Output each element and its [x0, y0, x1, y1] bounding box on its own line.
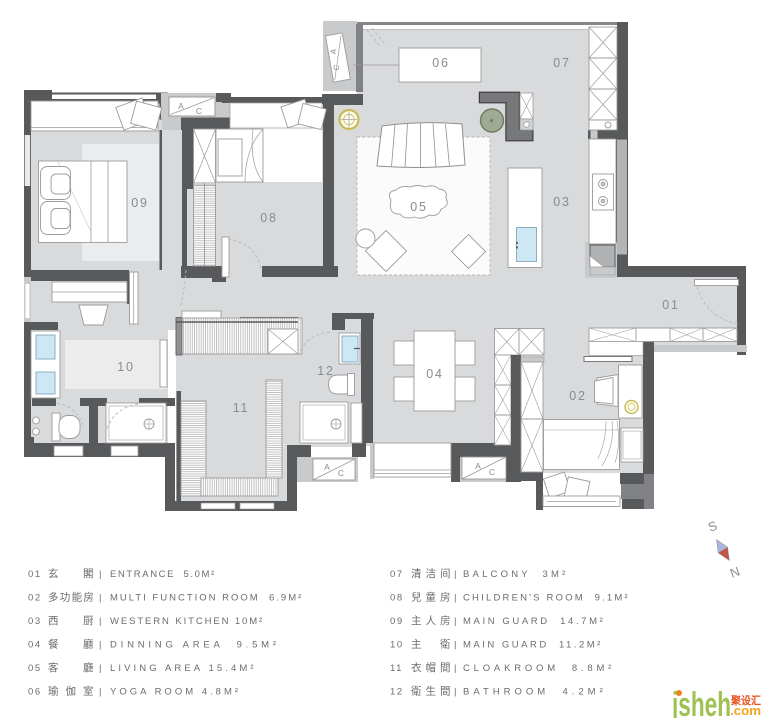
- svg-text:|: |: [99, 593, 103, 604]
- svg-text:S: S: [706, 518, 720, 535]
- svg-text:01: 01: [28, 569, 42, 580]
- svg-text:LIVING AREA 15.4M²: LIVING AREA 15.4M²: [110, 663, 257, 674]
- svg-text:C: C: [489, 467, 495, 477]
- svg-text:A: A: [324, 462, 330, 472]
- svg-text:|: |: [99, 687, 103, 698]
- svg-text:09: 09: [390, 616, 404, 627]
- svg-text:CHILDREN'S ROOM 9.1M²: CHILDREN'S ROOM 9.1M²: [463, 593, 630, 604]
- svg-text:03: 03: [28, 616, 42, 627]
- svg-text:|: |: [454, 640, 458, 651]
- svg-text:10: 10: [390, 640, 404, 651]
- svg-text:|: |: [454, 593, 458, 604]
- svg-text:清洁间: 清洁间: [411, 567, 451, 580]
- svg-text:02: 02: [569, 389, 587, 403]
- svg-text:客廳: 客廳: [48, 661, 94, 674]
- svg-text:02: 02: [28, 593, 42, 604]
- svg-text:05: 05: [28, 663, 42, 674]
- svg-text:CLOAKROOM 8.8M²: CLOAKROOM 8.8M²: [463, 663, 615, 674]
- svg-text:|: |: [454, 616, 458, 627]
- svg-text:|: |: [454, 687, 458, 698]
- svg-text:05: 05: [410, 200, 428, 214]
- svg-text:12: 12: [317, 364, 335, 378]
- svg-text:07: 07: [390, 569, 404, 580]
- svg-text:BALCONY 3M²: BALCONY 3M²: [463, 569, 568, 580]
- svg-text:A: A: [178, 101, 184, 111]
- svg-text:MULTI FUNCTION ROOM 6.9M²: MULTI FUNCTION ROOM 6.9M²: [110, 593, 303, 604]
- svg-text:12: 12: [390, 687, 404, 698]
- svg-text:11: 11: [390, 663, 403, 674]
- svg-text:WESTERN KITCHEN 10M²: WESTERN KITCHEN 10M²: [110, 616, 264, 627]
- svg-text:DINNING AREA 9.5M²: DINNING AREA 9.5M²: [110, 640, 280, 651]
- svg-text:.com: .com: [730, 703, 761, 718]
- svg-text:06: 06: [28, 687, 42, 698]
- svg-text:11: 11: [233, 401, 250, 415]
- svg-text:瑜伽室: 瑜伽室: [48, 685, 94, 698]
- svg-text:餐廳: 餐廳: [48, 638, 94, 651]
- svg-text:N: N: [728, 564, 742, 581]
- svg-text:|: |: [99, 569, 103, 580]
- svg-text:08: 08: [390, 593, 404, 604]
- svg-text:|: |: [99, 663, 103, 674]
- svg-text:主人房: 主人房: [411, 614, 451, 627]
- svg-text:MAIN GUARD 14.7M²: MAIN GUARD 14.7M²: [463, 616, 605, 627]
- svg-text:03: 03: [553, 195, 571, 209]
- svg-text:A: A: [475, 461, 481, 471]
- svg-text:ENTRANCE 5.0M²: ENTRANCE 5.0M²: [110, 569, 216, 580]
- svg-text:衣帽間: 衣帽間: [411, 661, 451, 674]
- svg-text:YOGA ROOM 4.8M²: YOGA ROOM 4.8M²: [110, 687, 241, 698]
- svg-text:|: |: [99, 640, 103, 651]
- svg-text:C: C: [196, 106, 202, 116]
- svg-text:01: 01: [662, 298, 680, 312]
- svg-text:04: 04: [426, 367, 444, 381]
- svg-text:06: 06: [432, 56, 450, 70]
- svg-text:西厨: 西厨: [48, 615, 94, 627]
- svg-text:衛生間: 衛生間: [411, 685, 451, 698]
- svg-text:MAIN GUARD 11.2M²: MAIN GUARD 11.2M²: [463, 640, 603, 651]
- svg-text:兒童房: 兒童房: [411, 591, 451, 604]
- svg-text:04: 04: [28, 640, 42, 651]
- svg-text:BATHROOM 4.2M²: BATHROOM 4.2M²: [463, 687, 607, 698]
- svg-text:08: 08: [260, 211, 278, 225]
- svg-text:|: |: [454, 663, 458, 674]
- svg-text:09: 09: [131, 196, 149, 210]
- svg-text:10: 10: [117, 360, 135, 374]
- svg-text:玄閣: 玄閣: [48, 567, 94, 580]
- svg-text:多功能房: 多功能房: [48, 591, 94, 604]
- svg-text:07: 07: [553, 56, 571, 70]
- svg-text:|: |: [454, 569, 458, 580]
- svg-text:C: C: [338, 468, 344, 478]
- svg-text:|: |: [99, 616, 103, 627]
- svg-text:主衛: 主衛: [411, 638, 451, 651]
